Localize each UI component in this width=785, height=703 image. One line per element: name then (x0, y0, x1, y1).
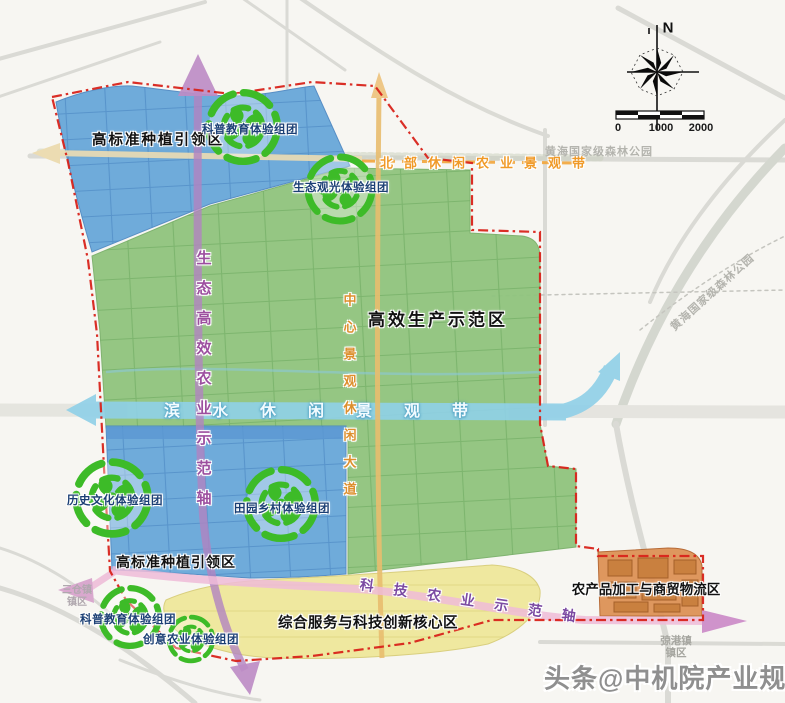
compass-north-label: N (663, 20, 674, 37)
cluster-label-rural-village: 田园乡村体验组团 (234, 500, 330, 516)
zone-label-production: 高效生产示范区 (368, 306, 508, 331)
forest-park-top-label: 黄海国家级森林公园 (545, 143, 653, 159)
zone-label-service-core: 综合服务与科技创新核心区 (278, 612, 458, 633)
jianggang-line2: 镇区 (660, 647, 692, 659)
scale-tick-2000: 2000 (689, 122, 713, 134)
water-strip (107, 427, 345, 439)
scale-tick-0: 0 (615, 122, 621, 134)
watermark: 头条@中机院产业规划网 (544, 659, 785, 696)
cluster-label-eco-sightseeing: 生态观光体验组团 (293, 179, 389, 195)
jianggang-town-label: 弶港镇 镇区 (660, 635, 692, 659)
zone-label-logistics: 农产品加工与商贸物流区 (572, 578, 721, 598)
eco-axis-label: 生态高效农业示范轴 (193, 250, 214, 520)
cluster-label-science-education-south: 科普教育体验组团 (80, 611, 176, 627)
cluster-label-creative-agriculture: 创意农业体验组团 (143, 631, 239, 647)
central-avenue-label: 中心景观休闲大道 (340, 293, 359, 509)
scale-tick-1000: 1000 (649, 122, 673, 134)
sancang-town-label: 三仓镇 镇区 (62, 585, 92, 609)
sancang-line1: 三仓镇 (62, 585, 92, 597)
waterfront-belt-label: 滨水休闲景观带 (164, 397, 500, 421)
zone-label-south-planting: 高标准种植引领区 (116, 552, 236, 572)
scale-bar (616, 111, 704, 119)
planning-map: 高标准种植引领区 高效生产示范区 高标准种植引领区 综合服务与科技创新核心区 农… (0, 0, 785, 703)
sancang-line2: 镇区 (62, 597, 92, 609)
jianggang-line1: 弶港镇 (660, 635, 692, 647)
cluster-label-history-culture: 历史文化体验组团 (67, 492, 163, 508)
cluster-label-science-education: 科普教育体验组团 (202, 121, 298, 137)
